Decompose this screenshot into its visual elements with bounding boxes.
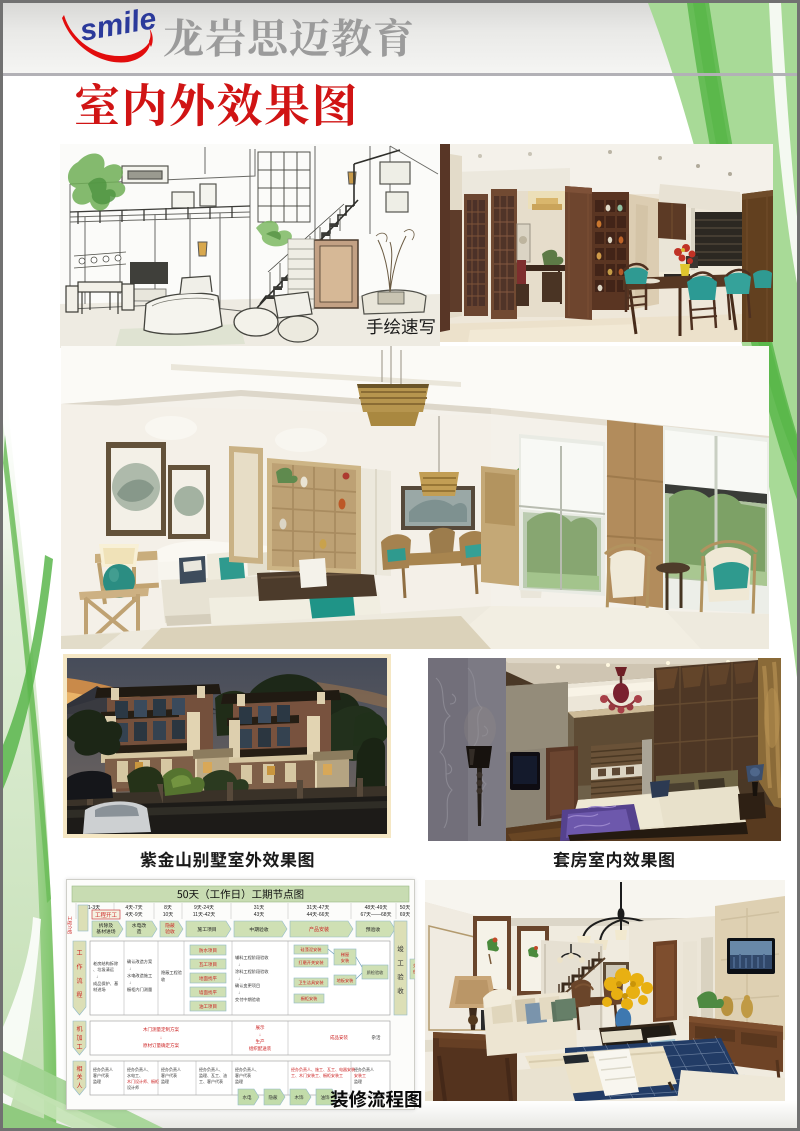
- svg-text:安装: 安装: [341, 957, 350, 964]
- svg-text:造: 造: [137, 928, 142, 935]
- svg-text:监理: 监理: [161, 1078, 169, 1084]
- svg-text:成品保护、基: 成品保护、基: [93, 980, 119, 987]
- svg-text:确认改造方案: 确认改造方案: [127, 958, 153, 965]
- svg-text:梯屋: 梯屋: [341, 951, 349, 958]
- svg-text:使用: 使用: [413, 968, 415, 974]
- svg-text:油工项目: 油工项目: [199, 1003, 217, 1010]
- svg-text:人: 人: [76, 1083, 82, 1090]
- svg-text:↓: ↓: [129, 980, 131, 985]
- svg-text:工程开工: 工程开工: [95, 911, 118, 919]
- svg-text:31天-47天: 31天-47天: [307, 905, 330, 911]
- svg-text:木饰: 木饰: [295, 1094, 304, 1101]
- svg-text:产品安装: 产品安装: [309, 926, 329, 933]
- svg-text:原材订量确定方案: 原材订量确定方案: [143, 1042, 179, 1049]
- svg-text:50天: 50天: [400, 905, 411, 911]
- svg-text:、垃圾清运: 、垃圾清运: [93, 966, 115, 973]
- svg-text:监理: 监理: [93, 1078, 101, 1084]
- svg-text:4天-7天: 4天-7天: [125, 905, 142, 911]
- svg-text:经办负责人、: 经办负责人、: [127, 1066, 151, 1072]
- svg-text:43天: 43天: [254, 912, 265, 918]
- svg-text:生产: 生产: [256, 1038, 265, 1045]
- svg-text:经办负责人、: 经办负责人、: [199, 1066, 223, 1072]
- svg-text:拆除及: 拆除及: [99, 922, 114, 929]
- svg-text:监理: 监理: [354, 1078, 362, 1084]
- svg-text:辅料工程阶段验收: 辅料工程阶段验收: [235, 954, 269, 961]
- svg-text:↓: ↓: [238, 990, 240, 995]
- svg-text:水电: 水电: [243, 1094, 252, 1100]
- svg-text:↓: ↓: [259, 1032, 261, 1037]
- svg-text:安装工: 安装工: [354, 1072, 366, 1078]
- svg-text:经办负责人: 经办负责人: [161, 1066, 181, 1072]
- svg-text:客户代表: 客户代表: [235, 1072, 251, 1078]
- svg-text:橱柜安装: 橱柜安装: [301, 995, 319, 1002]
- svg-text:材进场: 材进场: [93, 986, 106, 993]
- svg-text:作: 作: [76, 963, 82, 971]
- svg-text:木门设计师、橱柜: 木门设计师、橱柜: [127, 1078, 159, 1084]
- svg-text:组织配送装: 组织配送装: [249, 1045, 272, 1052]
- svg-text:10天: 10天: [163, 912, 174, 918]
- svg-text:中期验收: 中期验收: [249, 926, 268, 933]
- svg-text:施工项目: 施工项目: [197, 926, 216, 933]
- svg-text:地板安装: 地板安装: [337, 977, 355, 984]
- svg-text:机: 机: [76, 1025, 82, 1033]
- svg-text:验: 验: [397, 972, 404, 981]
- svg-text:↓: ↓: [238, 962, 240, 967]
- svg-text:防水项目: 防水项目: [199, 947, 217, 954]
- svg-text:↓: ↓: [238, 976, 240, 981]
- svg-text:监理、瓦工、油: 监理、瓦工、油: [199, 1072, 227, 1078]
- svg-text:质检验收: 质检验收: [367, 969, 385, 976]
- svg-text:卫生洁具安装: 卫生洁具安装: [298, 979, 324, 986]
- svg-text:交付: 交付: [413, 962, 415, 968]
- svg-text:橱柜内门测量: 橱柜内门测量: [127, 986, 152, 993]
- svg-text:地面找平: 地面找平: [199, 975, 217, 982]
- svg-text:↓: ↓: [96, 974, 98, 979]
- svg-text:工: 工: [76, 1044, 82, 1051]
- svg-text:smile: smile: [77, 2, 158, 48]
- svg-text:杂活: 杂活: [372, 1034, 381, 1041]
- svg-text:关: 关: [76, 1073, 82, 1081]
- svg-text:↓: ↓: [129, 966, 131, 971]
- svg-text:4天-9天: 4天-9天: [125, 912, 142, 918]
- svg-text:67天——68天: 67天——68天: [360, 912, 391, 918]
- svg-text:48天-49天: 48天-49天: [365, 905, 388, 911]
- svg-text:验收: 验收: [165, 928, 175, 935]
- svg-text:确认变更项目: 确认变更项目: [235, 982, 260, 989]
- svg-text:油饰: 油饰: [321, 1094, 330, 1101]
- svg-text:工: 工: [76, 950, 82, 957]
- svg-text:经办负责人、: 经办负责人、: [235, 1066, 259, 1072]
- svg-text:隐蔽工程验: 隐蔽工程验: [161, 969, 183, 976]
- svg-text:客户代表: 客户代表: [93, 1072, 109, 1078]
- svg-text:监理: 监理: [235, 1078, 243, 1084]
- svg-text:收: 收: [397, 986, 404, 995]
- svg-text:程: 程: [76, 991, 82, 999]
- svg-text:工: 工: [397, 960, 404, 967]
- svg-text:设计师: 设计师: [127, 1084, 139, 1090]
- svg-text:硅藻泥安装: 硅藻泥安装: [301, 946, 323, 953]
- svg-text:经办负责人: 经办负责人: [93, 1066, 113, 1072]
- svg-text:水电改: 水电改: [132, 922, 147, 929]
- svg-text:69天: 69天: [400, 912, 411, 918]
- svg-text:成品安装: 成品安装: [330, 1034, 348, 1041]
- svg-text:11天-42天: 11天-42天: [193, 912, 215, 918]
- svg-text:涂料工程阶段验收: 涂料工程阶段验收: [235, 968, 269, 975]
- svg-text:老房结构拆除: 老房结构拆除: [93, 960, 119, 967]
- svg-text:客户代表: 客户代表: [161, 1072, 177, 1078]
- svg-text:相: 相: [76, 1065, 82, 1073]
- svg-text:经办负责人: 经办负责人: [354, 1066, 374, 1072]
- svg-text:8天: 8天: [164, 905, 172, 911]
- svg-text:水电工、: 水电工、: [127, 1072, 143, 1078]
- svg-text:工、木门安装工、橱柜安装工: 工、木门安装工、橱柜安装工: [291, 1072, 343, 1078]
- svg-text:墙面找平: 墙面找平: [199, 989, 217, 996]
- svg-text:31天: 31天: [254, 905, 265, 911]
- svg-text:打磨开关安装: 打磨开关安装: [298, 959, 324, 966]
- svg-text:工、客户代表: 工、客户代表: [199, 1078, 223, 1084]
- svg-text:加: 加: [76, 1034, 82, 1042]
- svg-text:9天-24天: 9天-24天: [194, 905, 214, 911]
- svg-text:隐蔽: 隐蔽: [269, 1094, 278, 1101]
- svg-text:交付中期验收: 交付中期验收: [235, 996, 261, 1003]
- svg-text:竣: 竣: [397, 944, 404, 953]
- svg-text:隐蔽: 隐蔽: [165, 922, 175, 929]
- svg-text:预验收: 预验收: [366, 926, 381, 933]
- svg-text:44天-66天: 44天-66天: [307, 912, 330, 918]
- svg-text:水电改造施工: 水电改造施工: [127, 972, 152, 979]
- svg-text:木门测量定制方案: 木门测量定制方案: [143, 1026, 179, 1033]
- svg-text:↓: ↓: [160, 1035, 162, 1040]
- svg-text:流: 流: [76, 977, 82, 985]
- svg-text:工程介绍: 工程介绍: [66, 916, 73, 934]
- svg-text:基材进场: 基材进场: [96, 928, 115, 935]
- svg-text:经办负责人、施工、瓦工、电器安装: 经办负责人、施工、瓦工、电器安装: [291, 1066, 355, 1072]
